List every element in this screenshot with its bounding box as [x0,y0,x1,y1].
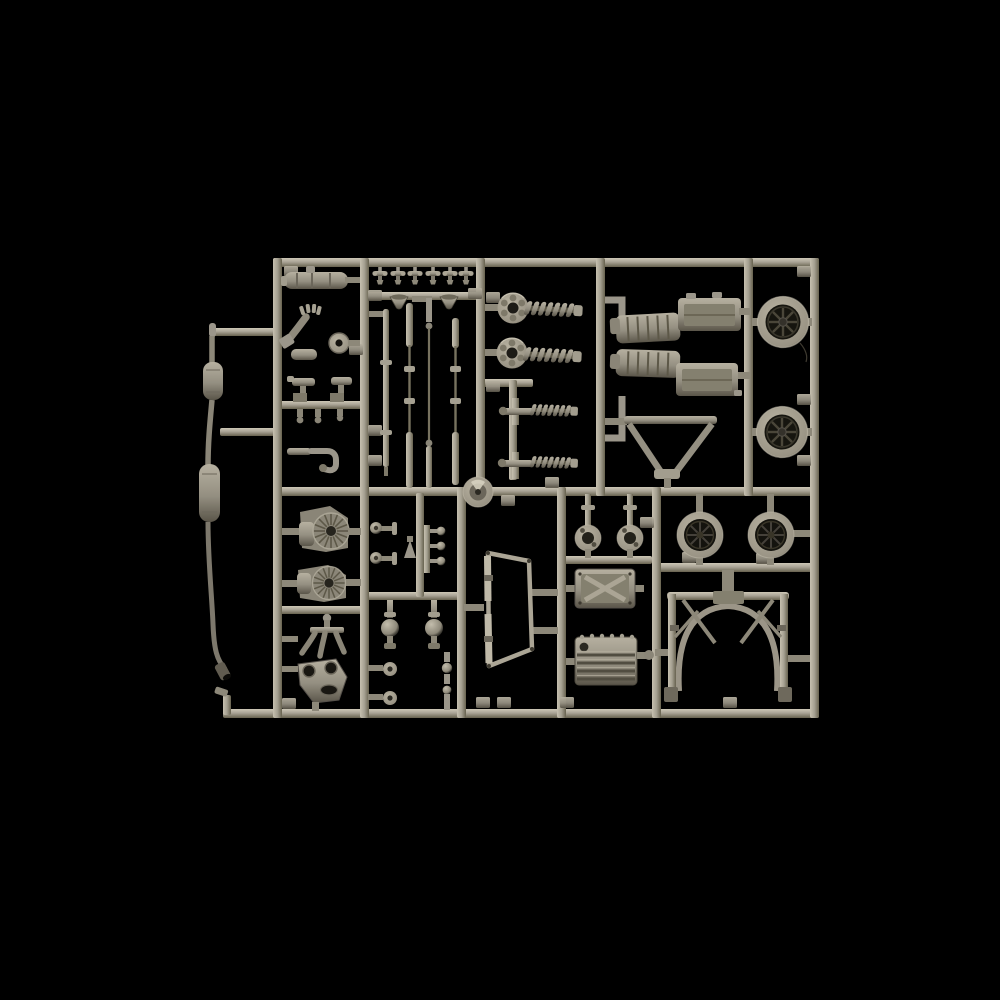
black-background [0,0,1000,1000]
part-steering-hub-disc [463,477,493,507]
part-small-cylinder [291,349,317,360]
part-gearbox-cover [566,569,644,608]
sprue-photo [0,0,1000,1000]
photo-stage [0,0,1000,1000]
